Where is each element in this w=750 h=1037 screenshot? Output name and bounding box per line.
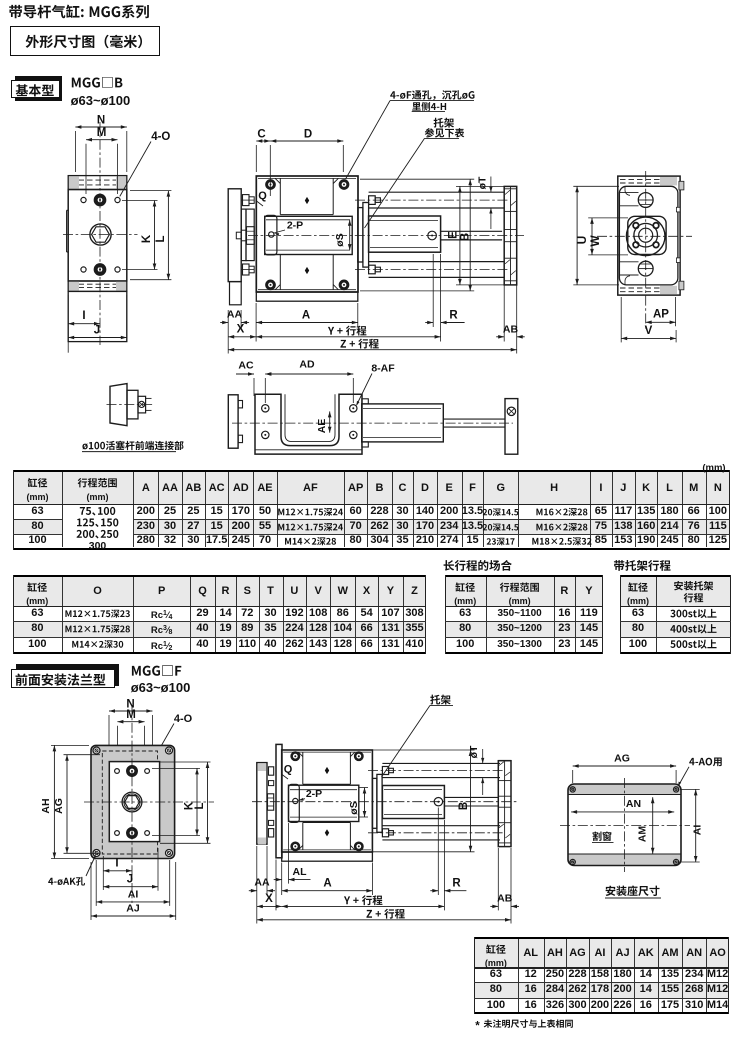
svg-text:C: C	[257, 129, 265, 141]
svg-text:AL: AL	[293, 866, 308, 878]
svg-text:AC: AC	[238, 360, 254, 372]
svg-text:J: J	[94, 325, 100, 337]
svg-text:X: X	[237, 324, 245, 336]
svg-text:AM: AM	[637, 826, 649, 843]
svg-text:300: 300	[89, 540, 107, 552]
svg-text:Q: Q	[258, 190, 267, 202]
svg-text:E: E	[448, 231, 460, 239]
svg-text:4-O: 4-O	[151, 131, 170, 143]
svg-text:AB: AB	[503, 324, 519, 336]
svg-text:AA: AA	[254, 877, 270, 889]
svg-text:U: U	[575, 236, 589, 245]
svg-text:I: I	[115, 858, 118, 870]
svg-text:A: A	[302, 310, 310, 322]
svg-text:4-O: 4-O	[174, 713, 193, 725]
svg-text:M: M	[126, 709, 136, 721]
svg-text:R: R	[449, 310, 458, 322]
svg-text:B: B	[458, 802, 470, 810]
svg-text:8-AF: 8-AF	[371, 363, 395, 375]
svg-text:K: K	[184, 801, 196, 810]
svg-text:K: K	[141, 234, 153, 243]
svg-text:D: D	[304, 129, 312, 141]
svg-text:øS: øS	[334, 233, 346, 246]
svg-text:A: A	[323, 878, 331, 890]
svg-text:I: I	[82, 310, 85, 322]
svg-text:L: L	[155, 235, 167, 242]
svg-text:AA: AA	[227, 309, 243, 321]
svg-text:AH: AH	[40, 798, 52, 813]
svg-text:V: V	[645, 325, 653, 337]
svg-text:Q: Q	[284, 764, 293, 776]
svg-text:AP: AP	[653, 308, 669, 320]
svg-text:AI: AI	[128, 889, 139, 901]
svg-text:AG: AG	[53, 798, 65, 814]
svg-text:M: M	[97, 127, 107, 139]
svg-text:R: R	[452, 878, 461, 890]
svg-text:AE: AE	[316, 419, 328, 434]
svg-text:AJ: AJ	[126, 903, 140, 915]
svg-text:N: N	[126, 699, 134, 711]
svg-text:øT: øT	[477, 176, 489, 189]
svg-text:AG: AG	[614, 753, 630, 765]
svg-text:AB: AB	[497, 893, 513, 905]
svg-text:X: X	[265, 893, 273, 905]
svg-text:W: W	[588, 235, 602, 247]
svg-text:øT: øT	[468, 745, 480, 758]
svg-text:*: *	[475, 1021, 480, 1033]
svg-text:AN: AN	[626, 798, 641, 810]
svg-text:øS: øS	[348, 801, 360, 814]
svg-text:B: B	[459, 233, 471, 241]
svg-text:2-P: 2-P	[306, 788, 322, 800]
svg-text:L: L	[194, 802, 206, 809]
svg-text:J: J	[127, 874, 133, 886]
svg-text:2-P: 2-P	[287, 220, 303, 232]
svg-text:AI: AI	[692, 825, 704, 836]
svg-text:AD: AD	[299, 359, 315, 371]
svg-text:N: N	[97, 115, 105, 127]
